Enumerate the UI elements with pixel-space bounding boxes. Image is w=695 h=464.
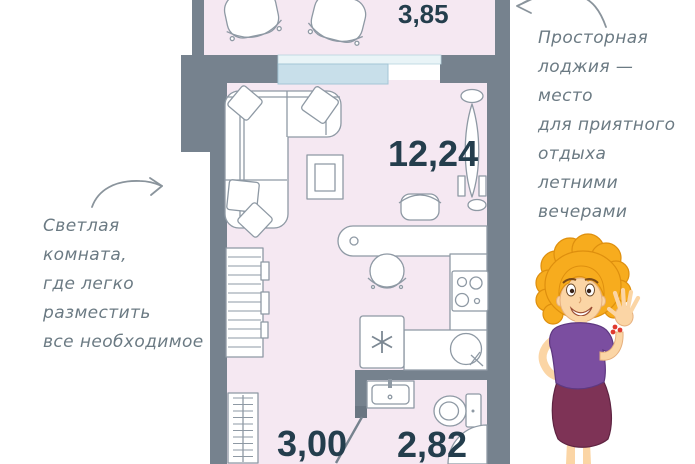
stove: [452, 271, 488, 311]
toilet: [434, 394, 481, 427]
annotation-line: для приятного: [538, 111, 675, 140]
washbasin: [367, 379, 414, 408]
mascot-woman: [536, 234, 638, 464]
kitchen-sink: [451, 334, 484, 367]
radiator: [228, 393, 258, 463]
annotation-line: разместить: [43, 299, 204, 328]
annotation-line: лоджия —: [538, 53, 675, 82]
annotation-line: вечерами: [538, 198, 675, 227]
note-room: Светлая комната, где легко разместить вс…: [43, 212, 204, 357]
arrow-to-loggia: [517, 0, 606, 27]
annotation-line: комната,: [43, 241, 204, 270]
bar-stool: [399, 194, 441, 220]
area-label-hall: 3,00: [277, 423, 347, 464]
annotation-line: Просторная: [538, 24, 675, 53]
area-label-loggia: 3,85: [398, 0, 449, 29]
fridge: [360, 316, 404, 368]
area-label-room: 12,24: [388, 133, 478, 174]
window: [278, 55, 441, 84]
arrow-to-room: [92, 178, 162, 207]
bookshelf: [226, 248, 269, 357]
bar-counter: [338, 226, 487, 256]
annotation-line: место: [538, 82, 675, 111]
tv-table: [307, 155, 343, 199]
annotation-line: где легко: [43, 270, 204, 299]
annotation-line: все необходимое: [43, 328, 204, 357]
annotation-line: Светлая: [43, 212, 204, 241]
floorplan-advert: 3,85 12,24 3,00 2,82: [0, 0, 695, 464]
area-label-bathroom: 2,82: [397, 424, 467, 464]
note-loggia: Просторная лоджия — место для приятного …: [538, 24, 675, 227]
annotation-line: летними: [538, 169, 675, 198]
annotation-line: отдыха: [538, 140, 675, 169]
